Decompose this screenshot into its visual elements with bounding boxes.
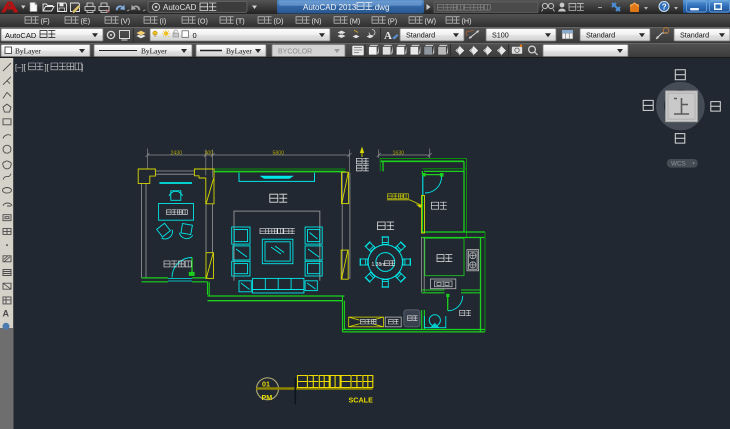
svg-text:[–][: [–][ [15, 63, 27, 72]
svg-text:Standard: Standard [680, 31, 709, 40]
svg-text:(F): (F) [41, 17, 50, 26]
svg-text:?: ? [662, 3, 667, 12]
svg-text:S100: S100 [492, 31, 509, 40]
svg-text:PM: PM [262, 393, 273, 402]
svg-text:ByLayer: ByLayer [226, 47, 252, 56]
svg-text:A: A [384, 30, 392, 42]
svg-text:(E): (E) [81, 17, 91, 26]
svg-text:01: 01 [262, 380, 270, 389]
svg-text:5800: 5800 [273, 151, 285, 157]
svg-text:0: 0 [193, 31, 197, 40]
svg-text:1.38m: 1.38m [372, 262, 386, 268]
svg-text:(M): (M) [350, 17, 361, 26]
svg-text:(I): (I) [160, 17, 167, 26]
svg-text:ByLayer: ByLayer [15, 47, 41, 56]
svg-text:(D): (D) [274, 17, 284, 26]
svg-text:1630: 1630 [393, 151, 405, 157]
svg-text:300: 300 [205, 151, 214, 157]
svg-text:AutoCAD 2013: AutoCAD 2013 [303, 3, 357, 12]
svg-text:(P): (P) [388, 17, 398, 26]
svg-text:(T): (T) [236, 17, 245, 26]
svg-text:WCS: WCS [671, 161, 686, 168]
svg-text:Standard: Standard [586, 31, 615, 40]
svg-text:Standard: Standard [406, 31, 435, 40]
svg-text:ByLayer: ByLayer [141, 47, 167, 56]
svg-text:BYCOLOR: BYCOLOR [278, 48, 312, 55]
svg-text:AutoCAD: AutoCAD [5, 31, 37, 40]
svg-text:A: A [3, 309, 10, 319]
svg-text:(N): (N) [312, 17, 322, 26]
svg-text:AutoCAD: AutoCAD [163, 3, 197, 12]
svg-text:]: ] [81, 63, 83, 72]
svg-text:SCALE: SCALE [349, 395, 374, 404]
svg-text:(W): (W) [425, 17, 437, 26]
svg-text:2430: 2430 [171, 151, 183, 157]
svg-text:(V): (V) [121, 17, 131, 26]
svg-text:(H): (H) [462, 17, 472, 26]
svg-text:.dwg: .dwg [373, 3, 390, 12]
svg-text:(O): (O) [198, 17, 208, 26]
